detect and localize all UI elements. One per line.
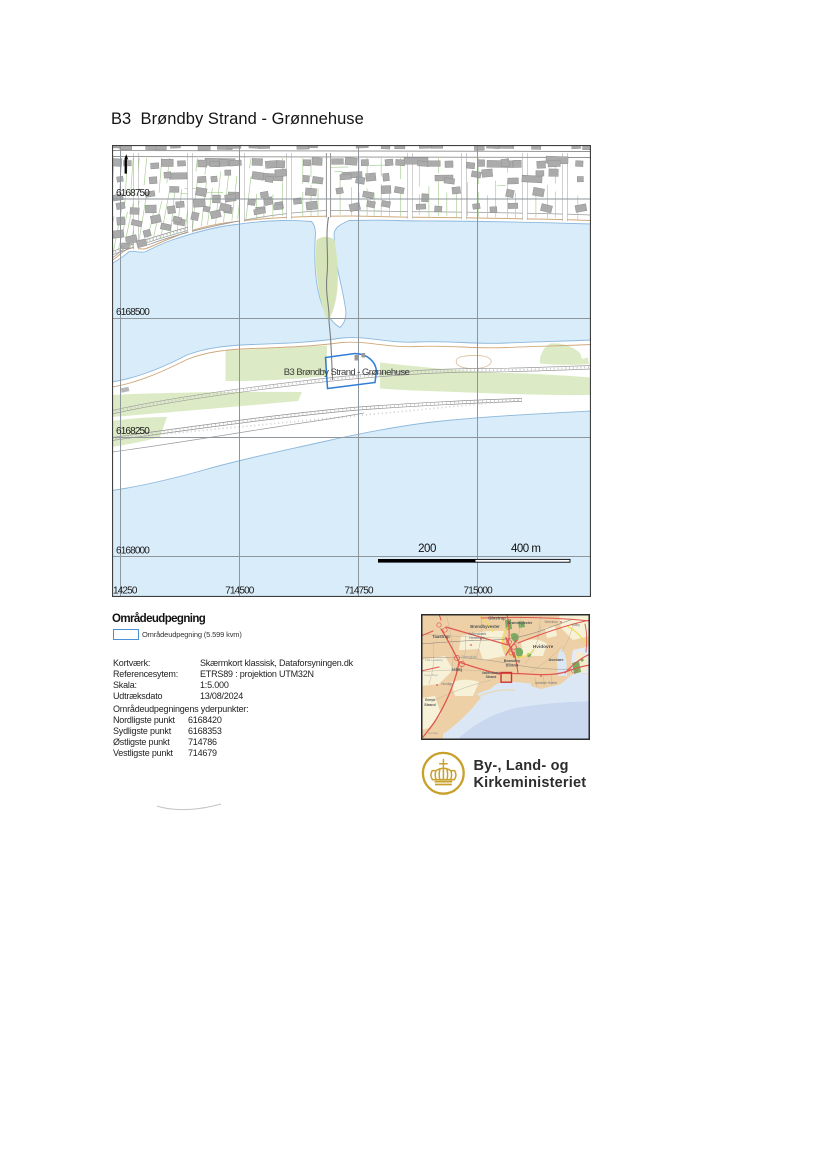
- svg-text:Taastrup: Taastrup: [432, 634, 450, 639]
- svg-text:Avedøre Holme: Avedøre Holme: [535, 681, 557, 685]
- svg-text:Greve: Greve: [425, 698, 435, 702]
- svg-text:Køge Bugt: Køge Bugt: [424, 673, 437, 677]
- svg-text:714750: 714750: [344, 585, 374, 596]
- svg-text:Strand: Strand: [506, 663, 519, 668]
- svg-text:6168500: 6168500: [116, 307, 150, 318]
- svg-text:Glostrup: Glostrup: [488, 616, 506, 621]
- svg-text:Hvidovre: Hvidovre: [533, 644, 554, 650]
- svg-text:6168000: 6168000: [116, 545, 150, 556]
- svg-text:Hundige: Hundige: [441, 682, 453, 686]
- svg-text:715000: 715000: [464, 585, 494, 596]
- svg-text:Strand: Strand: [486, 675, 497, 679]
- svg-text:6168250: 6168250: [116, 426, 150, 437]
- svg-text:Ishøj: Ishøj: [452, 667, 462, 672]
- svg-text:Nordmark: Nordmark: [469, 636, 485, 640]
- svg-text:200: 200: [418, 543, 436, 555]
- svg-text:Avedøre: Avedøre: [548, 658, 563, 662]
- svg-text:Valby: Valby: [572, 623, 580, 627]
- svg-text:Lille Landsby: Lille Landsby: [425, 658, 443, 662]
- svg-text:Brøndbyøster: Brøndbyøster: [508, 621, 533, 625]
- svg-text:Brøndbyvester: Brøndbyvester: [470, 624, 500, 629]
- svg-text:400 m: 400 m: [511, 543, 540, 555]
- svg-text:Strand: Strand: [424, 703, 435, 707]
- svg-text:714500: 714500: [225, 585, 255, 596]
- svg-text:Tranegilde: Tranegilde: [462, 655, 477, 659]
- svg-text:Vibenhus: Vibenhus: [544, 620, 558, 624]
- svg-text:Hundige: Hundige: [428, 731, 439, 735]
- svg-text:6168750: 6168750: [116, 188, 150, 199]
- svg-text:B3 Brøndby Strand - Grønnehuse: B3 Brøndby Strand - Grønnehuse: [284, 367, 410, 378]
- svg-text:14250: 14250: [113, 585, 138, 596]
